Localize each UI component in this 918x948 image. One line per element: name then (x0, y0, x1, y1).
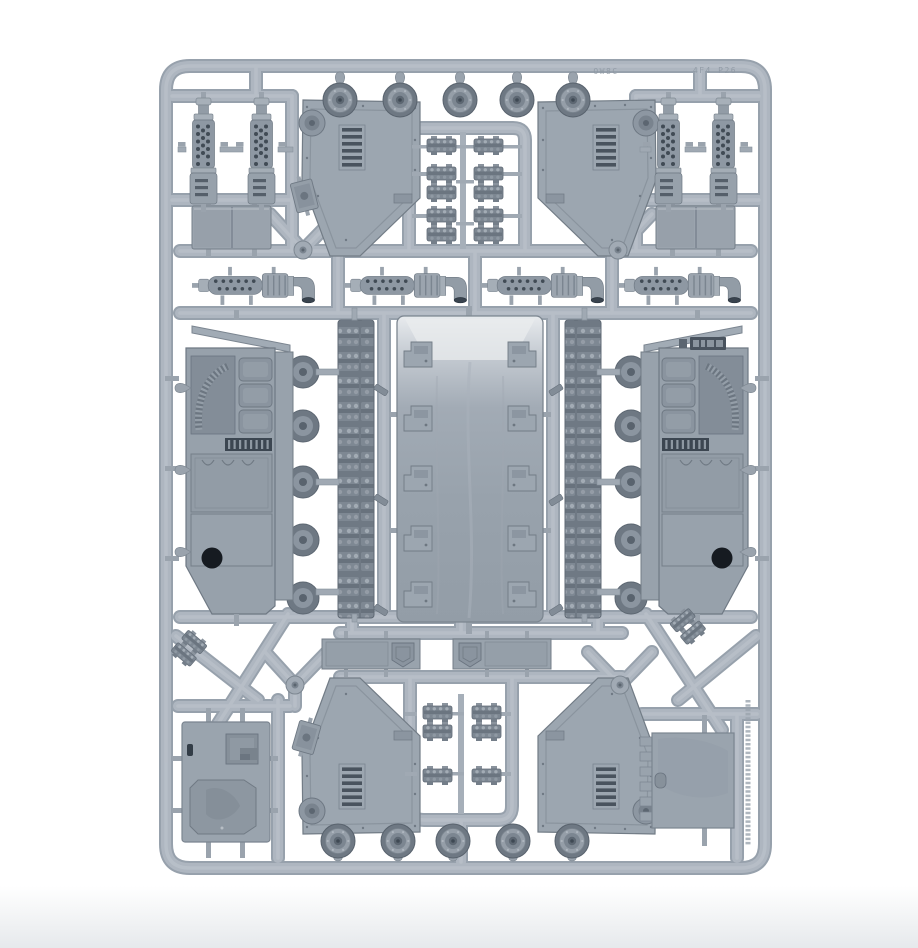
sprue-junction-disc (294, 241, 312, 259)
road-wheel (381, 824, 415, 858)
road-wheel (321, 824, 355, 858)
embossed-code-left: OW8C (593, 67, 618, 76)
embossed-code-right: 4F4 P26 (693, 66, 737, 75)
door-panel-left (172, 708, 278, 858)
road-wheel (383, 83, 417, 117)
door-panel-right (640, 715, 734, 846)
road-wheel (556, 83, 590, 117)
sprue-product-photo: OW8C 4F4 P26 (0, 0, 918, 948)
road-wheel (443, 83, 477, 117)
sprue-junction-disc (611, 676, 629, 694)
road-wheel (496, 824, 530, 858)
track-run-left (338, 320, 374, 618)
road-wheel (323, 83, 357, 117)
sprue-junction-disc (609, 241, 627, 259)
road-wheel (500, 83, 534, 117)
door-d-slot (655, 773, 666, 788)
sprue-junction-disc (286, 676, 304, 694)
floor-shadow (0, 886, 918, 948)
track-run-right (565, 320, 601, 618)
road-wheel (555, 824, 589, 858)
door-slot (187, 744, 193, 756)
road-wheel (436, 824, 470, 858)
hull-floor-panel (389, 306, 551, 634)
